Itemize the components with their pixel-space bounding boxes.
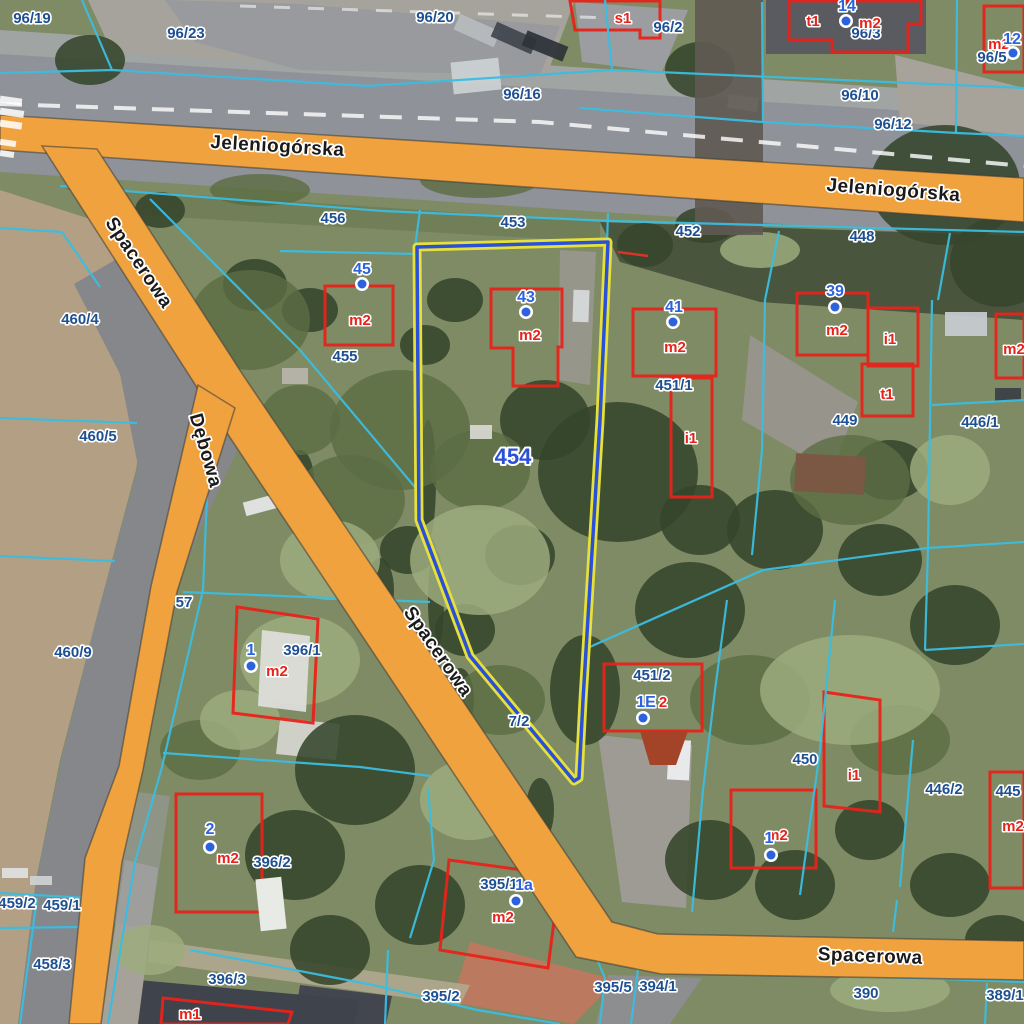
building-label-m2-4: m2 — [349, 312, 371, 329]
parcel-label-96-2: 96/2 — [653, 19, 682, 36]
parcel-label-460-5: 460/5 — [79, 428, 117, 445]
tree-canopy — [290, 915, 370, 985]
address-dot — [358, 280, 367, 289]
shrub-area — [430, 430, 530, 510]
canopy — [945, 312, 987, 336]
building-label-m2-12: m2 — [266, 663, 288, 680]
parcel-label-446-2: 446/2 — [925, 781, 963, 798]
tree-canopy — [635, 562, 745, 658]
tree-canopy — [617, 223, 673, 267]
tree-canopy — [55, 35, 125, 85]
map-svg[interactable]: JeleniogórskaJeleniogórskaSpacerowaDębow… — [0, 0, 1024, 1024]
parcel-label-395-2: 395/2 — [422, 988, 460, 1005]
address-number: 1 — [765, 830, 774, 847]
building-label-m2-7: m2 — [826, 322, 848, 339]
address-number: 41 — [665, 299, 683, 316]
parcel-label-448: 448 — [849, 228, 874, 245]
truck — [2, 868, 28, 878]
parcel-label-449: 449 — [832, 412, 857, 429]
address-number: 1 — [247, 642, 256, 659]
parcel-label-394-1: 394/1 — [639, 978, 677, 995]
parcel-label-396-2: 396/2 — [253, 854, 291, 871]
tree-canopy — [665, 820, 755, 900]
building-label-i1-8: i1 — [884, 331, 897, 348]
tree-canopy — [400, 325, 450, 365]
parcel-label-57: 57 — [176, 594, 193, 611]
address-number: 43 — [517, 289, 535, 306]
shed-roof — [450, 58, 501, 95]
tree-canopy — [295, 715, 415, 825]
parcel-label-96-20: 96/20 — [416, 9, 454, 26]
parcel-boundary-line — [762, 2, 763, 122]
address-number: 39 — [826, 283, 844, 300]
address-number: 1E — [636, 694, 656, 711]
parcel-label-96-10: 96/10 — [841, 87, 879, 104]
address-number: 1a — [515, 877, 533, 894]
tree-canopy — [427, 278, 483, 322]
parcel-label-96-12: 96/12 — [874, 116, 912, 133]
building-label-t1-10: t1 — [880, 386, 893, 403]
parcel-label-460-9: 460/9 — [54, 644, 92, 661]
building-label-s1-0: s1 — [615, 10, 632, 27]
address-point-45-2[interactable]: 45 — [353, 261, 371, 291]
lawn-area — [910, 435, 990, 505]
parcel-label-446-1: 446/1 — [961, 414, 999, 431]
parcel-label-459-1: 459/1 — [43, 897, 81, 914]
tree-canopy — [910, 853, 990, 917]
address-dot — [842, 17, 851, 26]
building-label-i1-11: i1 — [685, 430, 698, 447]
address-number: 45 — [353, 261, 371, 278]
tree-canopy — [838, 524, 922, 596]
parcel-label-96-23: 96/23 — [167, 25, 205, 42]
parcel-label-395-1: 395/1 — [480, 876, 518, 893]
parcel-label-460-4: 460/4 — [61, 311, 99, 328]
shed-roof — [470, 425, 492, 439]
parcel-boundary-line — [0, 927, 82, 928]
building-label-2-13: 2 — [659, 694, 667, 711]
lawn-area — [115, 925, 185, 975]
parcel-label-458-3: 458/3 — [33, 956, 71, 973]
building-roof — [794, 453, 866, 495]
building-label-m1-19: m1 — [179, 1006, 201, 1023]
parcel-label-450: 450 — [792, 751, 817, 768]
address-number: 12 — [1003, 31, 1021, 48]
parcel-label-396-1: 396/1 — [283, 642, 321, 659]
address-dot — [767, 851, 776, 860]
parcel-label-96-19: 96/19 — [13, 10, 51, 27]
address-dot — [669, 318, 678, 327]
address-number: 2 — [206, 821, 215, 838]
pool — [255, 877, 286, 931]
shed-roof — [282, 368, 308, 384]
truck — [30, 876, 52, 885]
lawn-area — [760, 635, 940, 745]
address-dot — [206, 843, 215, 852]
building-label-t1-1: t1 — [806, 13, 819, 30]
lawn-area — [720, 232, 800, 268]
tree-canopy — [910, 585, 1000, 665]
parcel-label-454: 454 — [495, 444, 532, 469]
parcel-label-390: 390 — [853, 985, 878, 1002]
parcel-label-459-2: 459/2 — [0, 895, 36, 912]
address-point-39-5[interactable]: 39 — [826, 283, 844, 314]
parcel-label-456: 456 — [320, 210, 345, 227]
car — [572, 290, 589, 323]
building-label-m2-2: m2 — [859, 15, 881, 32]
parcel-label-453: 453 — [500, 214, 525, 231]
building-label-m2-6: m2 — [664, 339, 686, 356]
address-dot — [512, 897, 521, 906]
building-label-m2-17: m2 — [217, 850, 239, 867]
car — [995, 388, 1021, 401]
parcel-label-451-2: 451/2 — [633, 667, 671, 684]
address-dot — [831, 303, 840, 312]
parcel-label-389-1: 389/1 — [986, 987, 1024, 1004]
address-dot — [1009, 49, 1018, 58]
building-label-m2-9: m2 — [1003, 341, 1024, 358]
parcel-label-451-1: 451/1 — [655, 377, 693, 394]
building-label-m2-5: m2 — [519, 327, 541, 344]
building-label-m2-16: m2 — [1002, 818, 1024, 835]
address-dot — [247, 662, 256, 671]
parcel-label-455: 455 — [332, 348, 357, 365]
parcel-label-96-16: 96/16 — [503, 86, 541, 103]
parcel-label-7-2: 7/2 — [509, 713, 530, 730]
building-label-m2-18: m2 — [492, 909, 514, 926]
street-label-spacerowa-5: Spacerowa — [817, 944, 922, 969]
parcel-label-445: 445 — [995, 783, 1020, 800]
parcel-label-452: 452 — [675, 223, 700, 240]
address-point-43-3[interactable]: 43 — [517, 289, 535, 319]
parcel-label-395-5: 395/5 — [594, 979, 632, 996]
address-dot — [522, 308, 531, 317]
map-canvas[interactable]: JeleniogórskaJeleniogórskaSpacerowaDębow… — [0, 0, 1024, 1024]
building-label-i1-14: i1 — [848, 767, 861, 784]
parcel-label-396-3: 396/3 — [208, 971, 246, 988]
address-dot — [639, 714, 648, 723]
address-number: 14 — [838, 0, 856, 15]
parcel-boundary-line — [956, 0, 957, 133]
